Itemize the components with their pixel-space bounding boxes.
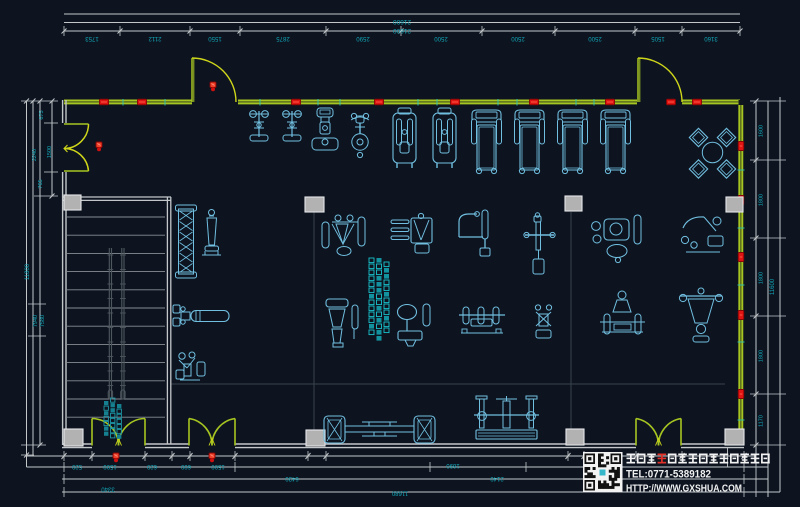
svg-text:TEL:0771-5389182: TEL:0771-5389182 (626, 469, 711, 481)
svg-text:1800: 1800 (759, 350, 765, 362)
svg-text:HTTP://WWW.GXSHUA.COM: HTTP://WWW.GXSHUA.COM (626, 483, 742, 495)
svg-text:1500: 1500 (211, 463, 225, 469)
svg-text:3160: 3160 (704, 35, 718, 41)
svg-text:11800: 11800 (25, 263, 31, 280)
svg-text:2500: 2500 (588, 35, 602, 41)
svg-text:765: 765 (38, 179, 44, 188)
svg-text:6430: 6430 (285, 475, 299, 481)
svg-text:2112: 2112 (148, 35, 162, 41)
svg-text:1550: 1550 (208, 35, 222, 41)
svg-text:1500: 1500 (47, 146, 53, 158)
svg-text:21600: 21600 (393, 18, 411, 25)
svg-text:1505: 1505 (651, 35, 665, 41)
svg-text:21600: 21600 (393, 27, 411, 34)
svg-text:1690: 1690 (446, 462, 460, 468)
svg-text:11680: 11680 (391, 490, 408, 496)
svg-text:620: 620 (146, 463, 157, 469)
svg-text:2875: 2875 (276, 35, 290, 41)
svg-text:2500: 2500 (434, 35, 448, 41)
svg-text:3340: 3340 (101, 486, 115, 492)
svg-text:1500: 1500 (103, 463, 117, 469)
svg-text:1600: 1600 (759, 125, 765, 137)
svg-text:2590: 2590 (356, 35, 370, 41)
svg-text:1170: 1170 (759, 415, 765, 427)
svg-text:1753: 1753 (85, 35, 99, 41)
svg-text:11600: 11600 (770, 278, 776, 295)
svg-text:2140: 2140 (490, 475, 504, 481)
svg-text:2240: 2240 (32, 149, 38, 161)
svg-text:1800: 1800 (759, 194, 765, 206)
svg-text:600: 600 (180, 463, 191, 469)
svg-text:1800: 1800 (759, 272, 765, 284)
svg-text:520: 520 (71, 463, 82, 469)
svg-text:7940: 7940 (33, 315, 39, 327)
svg-text:675: 675 (39, 110, 45, 119)
svg-text:7580: 7580 (40, 315, 46, 327)
svg-text:2500: 2500 (511, 35, 525, 41)
